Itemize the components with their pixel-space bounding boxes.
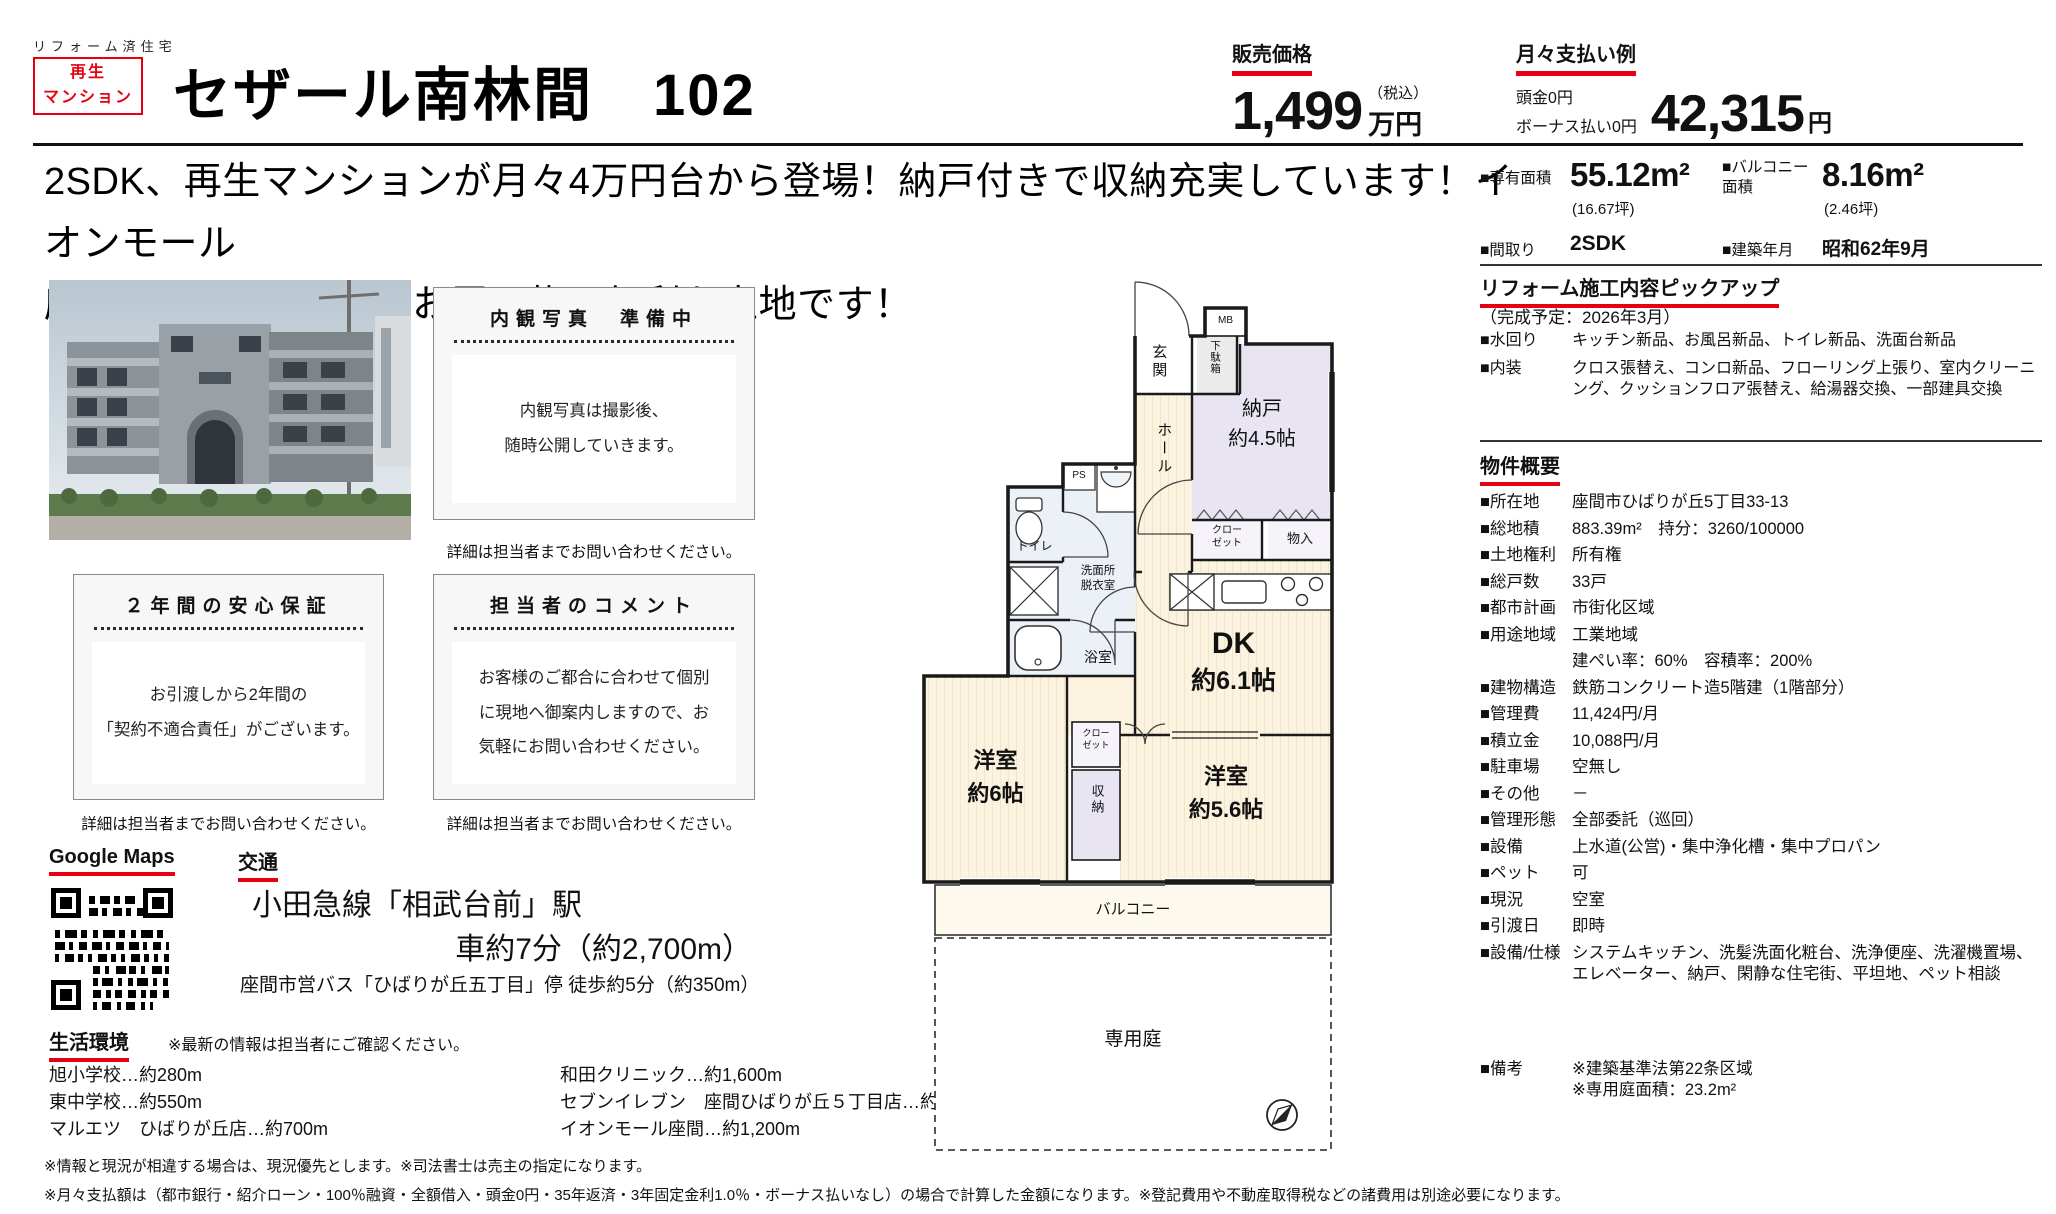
reform-tagline: リフォーム済住宅 (33, 36, 177, 55)
overview-row: ■設備上水道(公営)・集中浄化槽・集中プロパン (1480, 837, 2042, 858)
balcony-value: 8.16m² (1822, 158, 1924, 191)
overview-row: ■設備/仕様システムキッチン、洗髪洗面化粧台、洗浄便座、洗濯機置場、エレベーター… (1480, 943, 2042, 985)
life-item: 和田クリニック…約1,600m (560, 1066, 782, 1084)
hosho-box-body: お引渡しから2年間の 「契約不適合責任」がございます。 (92, 642, 365, 784)
life-section-label: 生活環境 (49, 1026, 129, 1062)
room-label-closet-mid: クロー ゼット (1072, 728, 1120, 751)
price-label: 販売価格 (1232, 38, 1312, 76)
overview-row: ■用途地域工業地域 (1480, 625, 2042, 646)
qr-code (49, 886, 175, 1017)
overview-rows: ■所在地座間市ひばりが丘5丁目33-13 ■総地積883.39m² 持分：326… (1480, 492, 2042, 1106)
renovation-row: ■水回り キッチン新品、お風呂新品、トイレ新品、洗面台新品 (1480, 330, 2042, 351)
overview-row: ■引渡日即時 (1480, 916, 2042, 937)
madori-value: 2SDK (1570, 232, 1626, 256)
madori-label: ■間取り (1480, 238, 1536, 260)
overview-row: ■現況空室 (1480, 890, 2042, 911)
hosho-box-caption: 詳細は担当者までお問い合わせください。 (73, 812, 384, 834)
building-photo (49, 280, 411, 540)
area-value: 55.12m² (1570, 158, 1689, 191)
room-label-west6: 洋室 約6帖 (924, 744, 1067, 810)
comment-box-caption: 詳細は担当者までお問い合わせください。 (433, 812, 755, 834)
room-label-getabako: 下駄箱 (1208, 340, 1222, 375)
overview-row: ■その他－ (1480, 784, 2042, 805)
room-label-toilet: トイレ (1008, 538, 1061, 554)
flyer-page: リフォーム済住宅 再生 マンション セザール南林間 102 販売価格 1,499… (0, 0, 2056, 1214)
built-value: 昭和62年9月 (1822, 234, 1930, 261)
dotted-divider (454, 627, 734, 630)
room-label-nando: 納戸 約4.5帖 (1202, 394, 1322, 454)
badge-line2: マンション (35, 86, 141, 111)
overview-row: ■積立金10,088円/月 (1480, 731, 2042, 752)
overview-row: ■ペット可 (1480, 863, 2042, 884)
room-label-ps: PS (1066, 469, 1092, 483)
dotted-divider (454, 340, 734, 343)
renovation-schedule: （完成予定：2026年3月） (1480, 303, 1680, 328)
dotted-divider (94, 627, 363, 630)
floorplan: 玄関 下駄箱 MB 納戸 約4.5帖 ホール クロー ゼット 物入 トイレ PS… (920, 272, 1335, 1157)
overview-row: ■建物構造鉄筋コンクリート造5階建（1階部分） (1480, 678, 2042, 699)
price-block: 販売価格 1,499 （税込） 万円 (1232, 38, 1428, 142)
saisei-mansion-badge: 再生 マンション (33, 57, 143, 115)
naikan-box-caption: 詳細は担当者までお問い合わせください。 (433, 540, 755, 562)
property-title: セザール南林間 102 (173, 48, 756, 132)
overview-row: 建ぺい率：60% 容積率：200% (1480, 651, 2042, 672)
comment-box-title: 担当者のコメント (452, 591, 736, 618)
access-car-line: 車約7分（約2,700m） (252, 924, 752, 968)
built-label: ■建築年月 (1722, 238, 1793, 260)
room-label-senmen: 洗面所 脱衣室 (1061, 564, 1135, 594)
overview-row: ■管理費11,424円/月 (1480, 704, 2042, 725)
monthly-unit: 円 (1808, 103, 1832, 138)
room-label-hall: ホール (1153, 422, 1173, 476)
monthly-value: 42,315 (1651, 84, 1804, 144)
monthly-downpayment: 頭金0円 (1516, 85, 1637, 114)
balcony-label: ■バルコニー面積 (1722, 158, 1818, 198)
google-maps-label: Google Maps (49, 846, 175, 876)
building-photo-image (49, 280, 411, 540)
life-item: セブンイレブン 座間ひばりが丘５丁目店…約57m (560, 1093, 973, 1111)
life-item: 東中学校…約550m (49, 1093, 202, 1111)
room-label-closet-top: クロー ゼット (1192, 525, 1262, 550)
panel-divider (1480, 264, 2042, 266)
overview-row-bikou: ■備考※建築基準法第22条区域 ※専用庭面積：23.2m² (1480, 1059, 2042, 1101)
area-tsubo: (16.67坪) (1572, 198, 1635, 219)
compass-icon (1267, 1100, 1297, 1130)
price-value: 1,499 (1232, 80, 1362, 142)
naikan-box-title: 内観写真 準備中 (452, 304, 736, 331)
room-label-garden: 専用庭 (935, 1027, 1331, 1053)
room-label-genkan: 玄関 (1148, 344, 1168, 380)
disclaimer-line: ※月々支払額は（都市銀行・紹介ローン・100％融資・全額借入・頭金0円・35年返… (44, 1181, 2024, 1210)
price-tax: （税込） (1368, 82, 1428, 103)
life-item: 旭小学校…約280m (49, 1066, 202, 1084)
price-unit: 万円 (1368, 103, 1422, 142)
header-divider (33, 143, 2023, 146)
access-label: 交通 (238, 846, 278, 882)
access-bus-line: 座間市営バス「ひばりが丘五丁目」停 徒歩約5分（約350m） (240, 970, 759, 997)
monthly-block: 月々支払い例 頭金0円 ボーナス払い0円 42,315 円 (1516, 38, 1832, 144)
renovation-row: ■内装 クロス張替え、コンロ新品、フローリング上張り、室内クリーニング、クッショ… (1480, 358, 2042, 400)
qr-code-image (49, 886, 175, 1012)
disclaimer-block: ※情報と現況が相違する場合は、現況優先とします。※司法書士は売主の指定になります… (44, 1152, 2024, 1211)
overview-title: 物件概要 (1480, 450, 1560, 486)
area-label: ■専有面積 (1480, 166, 1551, 188)
monthly-bonus: ボーナス払い0円 (1516, 114, 1637, 143)
overview-row: ■総地積883.39m² 持分：3260/100000 (1480, 519, 2042, 540)
map-section: Google Maps (49, 846, 175, 876)
panel-divider (1480, 440, 2042, 442)
access-train-line: 小田急線「相武台前」駅 (252, 880, 582, 924)
comment-box-body: お客様のご都合に合わせて個別 に現地へ御案内しますので、お 気軽にお問い合わせく… (452, 642, 736, 784)
warranty-box: ２年間の安心保証 お引渡しから2年間の 「契約不適合責任」がございます。 (73, 574, 384, 800)
overview-row: ■管理形態全部委託（巡回） (1480, 810, 2042, 831)
hosho-box-title: ２年間の安心保証 (92, 591, 365, 618)
monthly-label: 月々支払い例 (1516, 38, 1636, 76)
life-item: マルエツ ひばりが丘店…約700m (49, 1120, 328, 1138)
life-item: イオンモール座間…約1,200m (560, 1120, 800, 1138)
renovation-rows: ■水回り キッチン新品、お風呂新品、トイレ新品、洗面台新品 ■内装 クロス張替え… (1480, 330, 2042, 407)
interior-photo-placeholder-box: 内観写真 準備中 内観写真は撮影後、 随時公開していきます。 (433, 287, 755, 520)
balcony-tsubo: (2.46坪) (1824, 198, 1878, 219)
naikan-box-body: 内観写真は撮影後、 随時公開していきます。 (452, 355, 736, 503)
room-label-monoire: 物入 (1268, 530, 1332, 548)
overview-row: ■所在地座間市ひばりが丘5丁目33-13 (1480, 492, 2042, 513)
overview-row: ■総戸数33戸 (1480, 572, 2042, 593)
room-label-mb: MB (1205, 314, 1246, 328)
room-label-bath: 浴室 (1063, 648, 1133, 667)
room-label-dk: DK 約6.1帖 (1135, 624, 1332, 698)
agent-comment-box: 担当者のコメント お客様のご都合に合わせて個別 に現地へ御案内しますので、お 気… (433, 574, 755, 800)
room-label-west56: 洋室 約5.6帖 (1120, 760, 1332, 826)
room-label-balcony: バルコニー (935, 900, 1331, 920)
room-label-shuno: 収納 (1088, 784, 1106, 816)
overview-row: ■都市計画市街化区域 (1480, 598, 2042, 619)
access-section: 交通 (238, 846, 278, 882)
badge-line1: 再生 (35, 61, 141, 86)
overview-row: ■土地権利所有権 (1480, 545, 2042, 566)
overview-row: ■駐車場空無し (1480, 757, 2042, 778)
life-note: ※最新の情報は担当者にご確認ください。 (168, 1031, 469, 1055)
